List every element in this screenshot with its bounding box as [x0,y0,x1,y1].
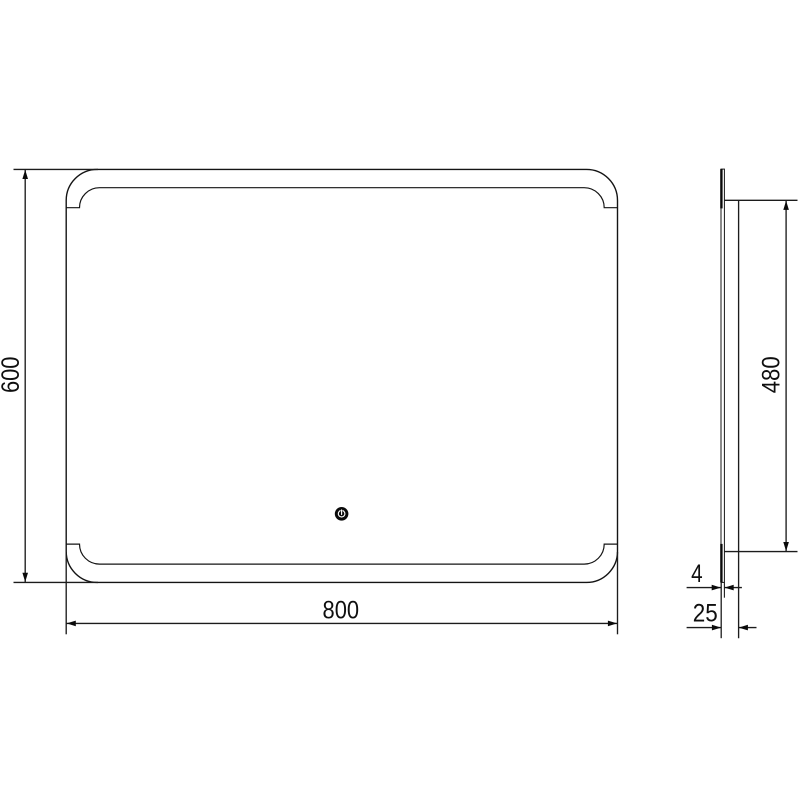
svg-text:800: 800 [323,597,360,625]
svg-text:4: 4 [691,560,703,588]
svg-text:480: 480 [758,356,786,393]
svg-text:600: 600 [0,357,25,394]
svg-text:25: 25 [693,599,718,627]
